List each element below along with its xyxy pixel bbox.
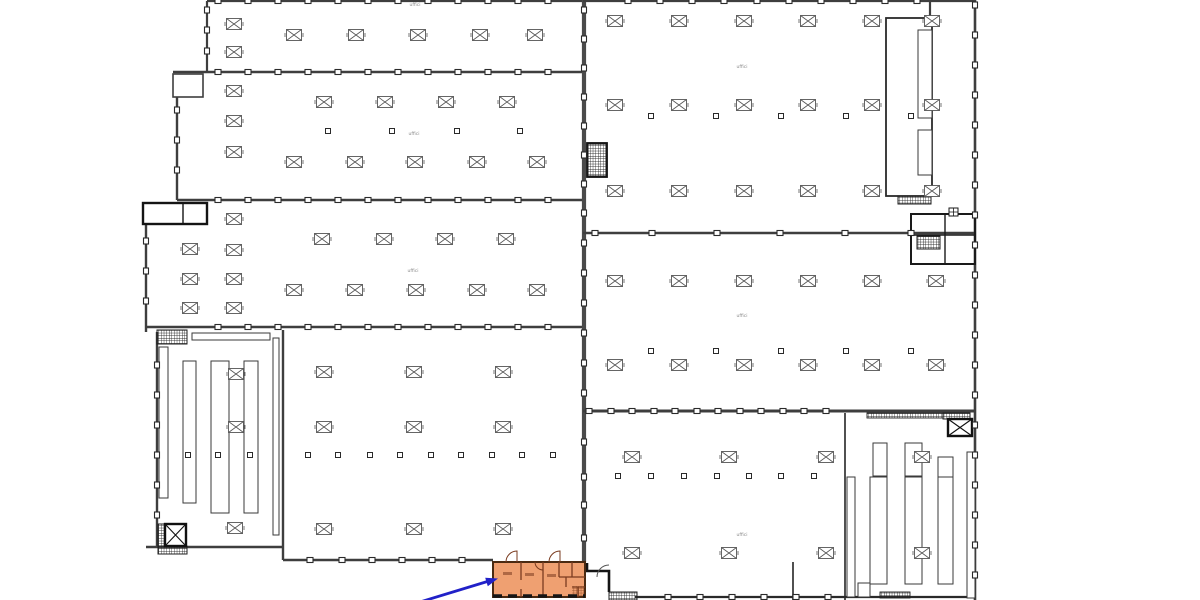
column-symbol: [923, 100, 941, 111]
wall-column-marker: [914, 0, 920, 4]
wall-column-marker: [973, 362, 978, 368]
wall-column-marker: [973, 392, 978, 398]
wall-column-marker: [485, 198, 491, 203]
column-dot: [649, 114, 654, 119]
highlighted-rooms[interactable]: [493, 551, 585, 597]
wall-column-marker: [365, 325, 371, 330]
wall-column-marker: [737, 409, 743, 414]
highlighted-rooms-base: [493, 562, 585, 597]
wall-column-marker: [825, 595, 831, 600]
column-symbol: [471, 30, 489, 41]
wall-column-marker: [801, 409, 807, 414]
wall-column-marker: [365, 0, 371, 4]
wall-column-marker: [395, 325, 401, 330]
wall-column-marker: [777, 231, 783, 236]
lift-box: [165, 524, 186, 546]
stair-hatch: [588, 144, 606, 176]
column-dot: [429, 453, 434, 458]
wall-column-marker: [545, 198, 551, 203]
wall-column-marker: [305, 0, 311, 4]
hall-label: uffici: [410, 2, 421, 8]
hatched-rack: [867, 413, 943, 418]
wall-column-marker: [205, 27, 210, 33]
wall-column-marker: [786, 0, 792, 4]
wall-column-marker: [155, 512, 160, 518]
wall-column-marker: [818, 0, 824, 4]
column-dot: [909, 114, 914, 119]
storage-rack: [873, 443, 887, 476]
column-symbol: [735, 360, 753, 371]
column-symbol: [225, 274, 243, 285]
column-symbol: [606, 100, 624, 111]
column-symbol: [735, 100, 753, 111]
column-symbol: [720, 452, 738, 463]
column-symbol: [799, 16, 817, 27]
column-symbol: [407, 285, 425, 296]
wall-column-marker: [715, 409, 721, 414]
bumpout-room: [143, 203, 207, 224]
wall-column-marker: [515, 0, 521, 4]
wall-column-marker: [144, 268, 149, 274]
wall-column-marker: [582, 390, 587, 396]
column-symbol: [285, 157, 303, 168]
wall-column-marker: [144, 238, 149, 244]
storage-rack: [211, 361, 229, 513]
column-symbol: [225, 303, 243, 314]
wall-column-marker: [395, 198, 401, 203]
wall-column-marker: [582, 360, 587, 366]
wall-column-marker: [335, 70, 341, 75]
wall-right-internal: [793, 413, 845, 600]
wall-column-marker: [335, 0, 341, 4]
wall-column-marker: [395, 0, 401, 4]
wall-column-marker: [365, 70, 371, 75]
hall-label: uffici: [408, 268, 419, 274]
column-symbol: [863, 360, 881, 371]
wall-column-marker: [582, 7, 587, 13]
column-dot: [812, 474, 817, 479]
column-symbol: [670, 100, 688, 111]
hall-label: uffici: [409, 131, 420, 137]
wall-column-marker: [339, 558, 345, 563]
column-dot: [844, 349, 849, 354]
wall-column-marker: [582, 270, 587, 276]
stair-hatch: [917, 236, 940, 249]
column-symbol: [720, 548, 738, 559]
column-symbol: [927, 360, 945, 371]
column-symbol: [498, 97, 516, 108]
column-dot: [714, 114, 719, 119]
column-dot: [909, 349, 914, 354]
wall-column-marker: [973, 122, 978, 128]
column-symbol: [494, 422, 512, 433]
wall-column-marker: [245, 325, 251, 330]
column-symbol: [913, 548, 931, 559]
wall-hall3: [146, 200, 583, 332]
column-symbol: [670, 276, 688, 287]
wall-column-marker: [793, 595, 799, 600]
column-symbol: [409, 30, 427, 41]
column-symbol: [437, 97, 455, 108]
column-symbol: [735, 16, 753, 27]
wall-column-marker: [697, 595, 703, 600]
wall-column-marker: [305, 198, 311, 203]
column-symbol: [405, 422, 423, 433]
step-wall-bottom: [587, 563, 609, 592]
wall-column-marker: [582, 240, 587, 246]
column-symbol: [670, 16, 688, 27]
wall-column-marker: [694, 409, 700, 414]
wall-column-marker: [758, 409, 764, 414]
stair-hatch: [609, 592, 637, 600]
column-symbol: [468, 157, 486, 168]
wall-column-marker: [608, 409, 614, 414]
window-grid-icon: [949, 208, 958, 216]
column-symbol: [181, 303, 199, 314]
wall-column-marker: [582, 181, 587, 187]
wall-column-marker: [335, 198, 341, 203]
stair-hatch: [157, 330, 187, 344]
column-symbol: [817, 548, 835, 559]
column-symbol: [375, 234, 393, 245]
column-symbol: [923, 186, 941, 197]
column-symbol: [799, 100, 817, 111]
column-dot: [490, 453, 495, 458]
storage-rack: [847, 477, 855, 597]
wall-column-marker: [485, 325, 491, 330]
wall-column-marker: [582, 300, 587, 306]
column-symbol: [315, 97, 333, 108]
storage-rack: [870, 477, 887, 584]
column-symbol: [225, 86, 243, 97]
wall-column-marker: [144, 298, 149, 304]
column-symbol: [347, 30, 365, 41]
wall-column-marker: [399, 558, 405, 563]
wall-column-marker: [823, 409, 829, 414]
wall-column-marker: [973, 512, 978, 518]
column-grid: [181, 16, 945, 559]
column-symbol: [670, 186, 688, 197]
floor-plan-canvas: ufficiufficiufficiufficiufficiuffici: [0, 0, 1200, 600]
hall-label: uffici: [737, 313, 748, 319]
wall-column-marker: [629, 409, 635, 414]
wall-column-marker: [973, 62, 978, 68]
column-dot: [248, 453, 253, 458]
wall-column-marker: [973, 182, 978, 188]
hall-label: uffici: [737, 532, 748, 538]
wall-column-marker: [973, 542, 978, 548]
column-symbol: [315, 367, 333, 378]
column-symbol: [315, 422, 333, 433]
wall-column-marker: [582, 36, 587, 42]
column-symbol: [923, 16, 941, 27]
room-tag-smudge: [547, 574, 556, 577]
wall-column-marker: [245, 0, 251, 4]
wall-column-marker: [485, 70, 491, 75]
column-symbol: [735, 186, 753, 197]
column-symbol: [436, 234, 454, 245]
column-symbol: [225, 47, 243, 58]
column-dot: [747, 474, 752, 479]
wall-column-marker: [155, 422, 160, 428]
column-dot: [649, 349, 654, 354]
column-dot: [398, 453, 403, 458]
wall-column-marker: [582, 535, 587, 541]
wall-column-marker: [582, 474, 587, 480]
wall-column-marker: [455, 0, 461, 4]
wall-column-marker: [485, 0, 491, 4]
column-dot: [682, 474, 687, 479]
column-symbol: [735, 276, 753, 287]
column-dots: [186, 114, 914, 479]
column-symbol: [227, 422, 245, 433]
wall-column-marker: [842, 231, 848, 236]
column-symbol: [526, 30, 544, 41]
storage-rack: [159, 347, 168, 498]
wall-column-marker: [395, 70, 401, 75]
column-symbol: [799, 186, 817, 197]
storage-rack: [858, 583, 870, 597]
wall-column-marker: [973, 2, 978, 8]
wall-column-marker: [425, 0, 431, 4]
column-symbol: [606, 276, 624, 287]
wall-column-marker: [665, 595, 671, 600]
storage-rack: [244, 361, 258, 513]
storage-rack: [938, 477, 953, 584]
column-dot: [186, 453, 191, 458]
column-symbol: [226, 523, 244, 534]
wall-column-marker: [582, 502, 587, 508]
wall-column-marker: [973, 242, 978, 248]
wall-column-marker: [155, 452, 160, 458]
wall-column-marker: [582, 439, 587, 445]
wall-column-marker: [429, 558, 435, 563]
column-dot: [336, 453, 341, 458]
annotation-arrow: [420, 578, 498, 600]
column-symbol: [468, 285, 486, 296]
column-symbol: [225, 245, 243, 256]
column-dot: [459, 453, 464, 458]
wall-column-marker: [973, 272, 978, 278]
wall-column-marker: [425, 198, 431, 203]
column-symbol: [405, 367, 423, 378]
wall-column-marker: [729, 595, 735, 600]
column-dot: [306, 453, 311, 458]
column-symbol: [225, 19, 243, 30]
corner-jog-room: [173, 74, 203, 97]
column-symbol: [863, 186, 881, 197]
wall-column-marker: [672, 409, 678, 414]
column-dot: [390, 129, 395, 134]
arrow-line: [420, 581, 489, 600]
column-dot: [779, 349, 784, 354]
wall-column-marker: [215, 70, 221, 75]
wall-column-marker: [175, 107, 180, 113]
wall-column-marker: [515, 325, 521, 330]
wall-column-marker: [245, 70, 251, 75]
storage-rack: [918, 130, 932, 175]
wall-column-marker: [586, 409, 592, 414]
column-symbol: [606, 16, 624, 27]
column-dot: [216, 453, 221, 458]
wall-column-marker: [175, 167, 180, 173]
wall-column-marker: [973, 92, 978, 98]
column-symbol: [528, 157, 546, 168]
column-symbol: [376, 97, 394, 108]
column-symbol: [285, 30, 303, 41]
wall-column-marker: [275, 70, 281, 75]
column-dot: [779, 114, 784, 119]
wall-column-marker: [651, 409, 657, 414]
column-symbol: [227, 369, 245, 380]
column-symbol: [406, 157, 424, 168]
column-symbol: [315, 524, 333, 535]
wall-column-marker: [754, 0, 760, 4]
column-symbol: [623, 548, 641, 559]
column-symbol: [606, 186, 624, 197]
wall-column-marker: [545, 0, 551, 4]
wall-column-marker: [973, 482, 978, 488]
column-symbol: [817, 452, 835, 463]
column-dot: [715, 474, 720, 479]
wall-column-marker: [155, 392, 160, 398]
storage-rack: [273, 338, 279, 535]
wall-column-marker: [155, 482, 160, 488]
wall-column-marker: [973, 572, 978, 578]
wall-column-marker: [459, 558, 465, 563]
storage-rack: [938, 457, 953, 477]
room-tag-smudge: [525, 573, 534, 576]
wall-column-marker: [973, 152, 978, 158]
wall-column-marker: [307, 558, 313, 563]
wall-column-marker: [973, 332, 978, 338]
window-grid-icon: [949, 208, 958, 216]
lift-box: [948, 419, 972, 436]
wall-column-marker: [455, 198, 461, 203]
wall-column-marker: [275, 0, 281, 4]
storage-rack: [183, 361, 196, 503]
wall-column-marker: [908, 231, 914, 236]
wall-column-marker: [215, 0, 221, 4]
wall-top-left-hall: [207, 1, 583, 72]
floor-plan-drawing: ufficiufficiufficiufficiufficiuffici: [0, 0, 1200, 600]
wall-column-marker: [973, 452, 978, 458]
wall-column-marker: [365, 198, 371, 203]
wall-column-marker: [515, 70, 521, 75]
wall-column-marker: [582, 123, 587, 129]
wall-column-marker: [592, 231, 598, 236]
column-dot: [649, 474, 654, 479]
column-dot: [326, 129, 331, 134]
wall-column-marker: [205, 7, 210, 13]
column-symbol: [405, 524, 423, 535]
column-symbol: [670, 360, 688, 371]
wall-column-marker: [714, 231, 720, 236]
wall-column-marker: [582, 152, 587, 158]
column-symbol: [494, 524, 512, 535]
column-symbol: [181, 274, 199, 285]
column-symbol: [181, 244, 199, 255]
column-dot: [518, 129, 523, 134]
stair-hatch: [898, 196, 931, 204]
column-symbol: [225, 116, 243, 127]
storage-rack: [192, 333, 270, 340]
column-symbol: [799, 276, 817, 287]
racking: [159, 30, 975, 598]
wall-column-marker: [882, 0, 888, 4]
column-dot: [616, 474, 621, 479]
column-symbol: [225, 214, 243, 225]
column-symbol: [225, 147, 243, 158]
wall-column-marker: [545, 325, 551, 330]
column-dot: [368, 453, 373, 458]
wall-column-marker: [245, 198, 251, 203]
wall-column-marker: [275, 198, 281, 203]
wall-column-marker: [649, 231, 655, 236]
wall-column-marker: [973, 302, 978, 308]
column-dot: [779, 474, 784, 479]
wall-column-marker: [205, 48, 210, 54]
stair-hatch: [158, 546, 187, 554]
hall-label: uffici: [737, 64, 748, 70]
wall-column-marker: [689, 0, 695, 4]
wall-column-marker: [175, 137, 180, 143]
wall-column-marker: [582, 94, 587, 100]
column-dot: [714, 349, 719, 354]
column-dot: [455, 129, 460, 134]
column-symbol: [799, 360, 817, 371]
column-dot: [520, 453, 525, 458]
wall-column-marker: [780, 409, 786, 414]
column-symbol: [494, 367, 512, 378]
wall-column-marker: [582, 330, 587, 336]
wall-column-marker: [625, 0, 631, 4]
wall-column-marker: [515, 198, 521, 203]
wall-column-marker: [455, 70, 461, 75]
column-symbol: [863, 276, 881, 287]
wall-column-marker: [369, 558, 375, 563]
wall-column-marker: [721, 0, 727, 4]
column-symbol: [285, 285, 303, 296]
wall-column-marker: [582, 65, 587, 71]
room-tag-smudge: [503, 572, 512, 575]
column-dot: [844, 114, 849, 119]
column-symbol: [863, 16, 881, 27]
column-symbol: [623, 452, 641, 463]
hatched-rack: [880, 592, 910, 598]
wall-column-marker: [657, 0, 663, 4]
wall-column-marker: [455, 325, 461, 330]
column-symbol: [927, 276, 945, 287]
column-symbol: [913, 452, 931, 463]
column-symbol: [346, 285, 364, 296]
wall-column-marker: [973, 422, 978, 428]
column-symbol: [528, 285, 546, 296]
wall-column-marker: [850, 0, 856, 4]
column-symbol: [346, 157, 364, 168]
column-dot: [551, 453, 556, 458]
column-symbol: [497, 234, 515, 245]
wall-column-marker: [275, 325, 281, 330]
wall-column-marker: [305, 325, 311, 330]
wall-column-marker: [335, 325, 341, 330]
wall-column-marker: [582, 210, 587, 216]
column-symbol: [606, 360, 624, 371]
wall-column-marker: [545, 70, 551, 75]
wall-column-marker: [215, 198, 221, 203]
wall-column-marker: [215, 325, 221, 330]
column-symbol: [863, 100, 881, 111]
